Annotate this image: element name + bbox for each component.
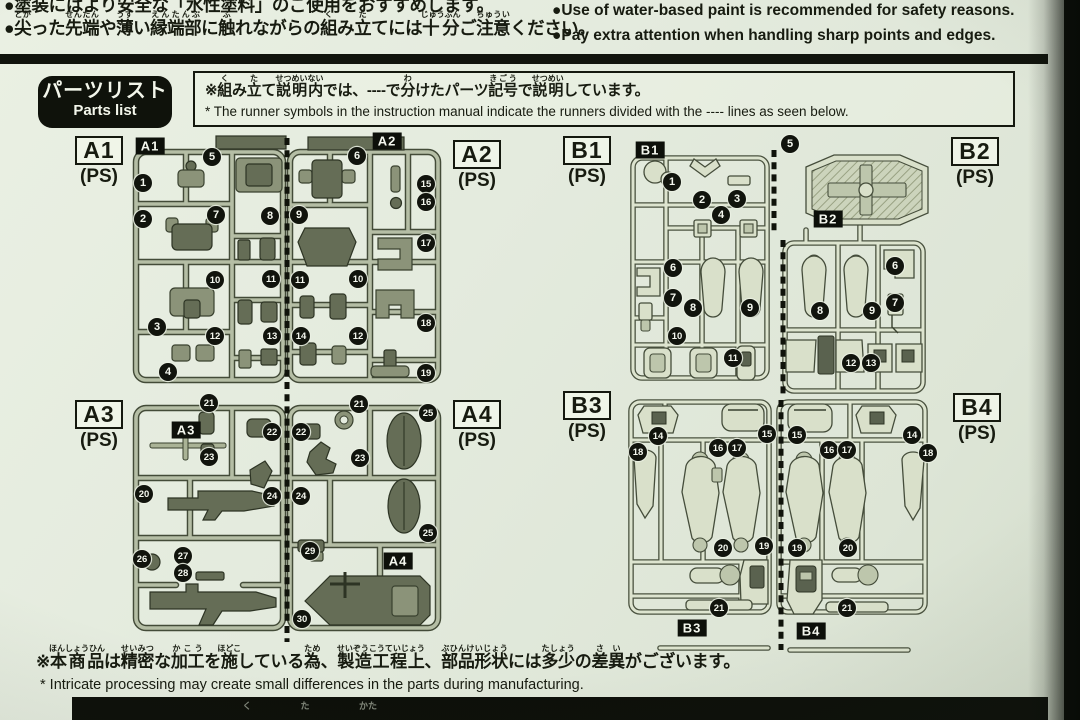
part-number-badge: 12 [206,327,224,345]
part-number-badge: 11 [291,271,309,289]
runner-tag-B2: B2 [814,211,843,228]
part-number-badge: 7 [664,289,682,307]
manual-page: ●塗装にはより安全な「水性塗料」のご使用をおすすめします。 ●尖とがった先端せん… [0,0,1064,720]
part-number-badge: 20 [135,485,153,503]
part-number-badge: 3 [728,190,746,208]
part-number-badge: 20 [839,539,857,557]
runner-label-box: A3 [75,400,122,429]
runner-material: (PS) [446,170,508,192]
part-number-badge: 10 [349,270,367,288]
part-number-badge: 19 [755,537,773,555]
part-number-badge: 6 [664,259,682,277]
part-number-badge: 18 [417,314,435,332]
runner-label-box: A1 [75,136,122,165]
part-number-badge: 21 [350,395,368,413]
part-number-badge: 15 [417,175,435,193]
part-number-badge: 27 [174,547,192,565]
part-number-badge: 18 [629,443,647,461]
part-number-badge: 15 [788,426,806,444]
runner-label-B4: B4(PS) [946,393,1008,445]
runner-material: (PS) [556,166,618,188]
band-furigana: た [300,699,309,712]
part-number-badge: 11 [262,270,280,288]
part-number-badge: 1 [134,174,152,192]
runner-art-A2 [290,137,438,380]
runner-tag-B4: B4 [797,623,826,640]
part-number-badge: 2 [693,191,711,209]
runner-label-B2: B2(PS) [944,137,1006,189]
manual-photo: ●塗装にはより安全な「水性塗料」のご使用をおすすめします。 ●尖とがった先端せん… [0,0,1080,720]
part-number-badge: 11 [724,349,742,367]
part-number-badge: 20 [714,539,732,557]
bottom-note-en: * Intricate processing may create small … [40,677,584,693]
part-number-badge: 10 [668,327,686,345]
part-number-badge: 25 [419,404,437,422]
part-number-badge: 13 [263,327,281,345]
runner-material: (PS) [446,430,508,452]
part-number-badge: 12 [349,327,367,345]
runner-tag-B1: B1 [636,142,665,159]
part-number-badge: 25 [419,524,437,542]
part-number-badge: 30 [293,610,311,628]
runner-label-A4: A4(PS) [446,400,508,452]
bottom-note-jp: ※本商品ほんしょうひんは精密せいみつな加工かこうを施ほどこしている為ため、製造工… [36,644,740,675]
runner-tag-A4: A4 [384,553,413,570]
page-edge-shadow [1028,0,1080,720]
part-number-badge: 6 [348,147,366,165]
runner-material: (PS) [556,421,618,443]
runner-material: (PS) [68,166,130,188]
part-number-badge: 22 [263,423,281,441]
runner-label-box: B3 [563,391,610,420]
runner-tag-A3: A3 [172,422,201,439]
part-number-badge: 8 [811,302,829,320]
part-number-badge: 21 [838,599,856,617]
runner-tag-B3: B3 [678,620,707,637]
runner-material: (PS) [946,423,1008,445]
part-number-badge: 17 [417,234,435,252]
runner-label-A2: A2(PS) [446,140,508,192]
band-furigana: く [242,699,251,712]
runner-label-box: B1 [563,136,610,165]
part-number-badge: 17 [728,439,746,457]
runner-label-A3: A3(PS) [68,400,130,452]
part-number-badge: 24 [292,487,310,505]
runner-material: (PS) [944,167,1006,189]
part-number-badge: 5 [781,135,799,153]
runner-label-B1: B1(PS) [556,136,618,188]
part-number-badge: 16 [709,439,727,457]
part-number-badge: 9 [741,299,759,317]
part-number-badge: 1 [663,173,681,191]
runner-tag-A1: A1 [136,138,165,155]
part-number-badge: 16 [417,193,435,211]
part-number-badge: 3 [148,318,166,336]
part-number-badge: 23 [200,448,218,466]
part-number-badge: 14 [649,427,667,445]
runner-art-A4 [290,408,438,628]
part-number-badge: 13 [862,354,880,372]
next-section-band: くたかた [72,697,1048,720]
runner-label-box: A4 [453,400,500,429]
part-number-badge: 8 [684,299,702,317]
part-number-badge: 18 [919,444,937,462]
part-number-badge: 22 [292,423,310,441]
part-number-badge: 4 [159,363,177,381]
part-number-badge: 19 [417,364,435,382]
part-number-badge: 9 [863,302,881,320]
part-number-badge: 12 [842,354,860,372]
part-number-badge: 14 [292,327,310,345]
band-furigana: かた [359,699,377,712]
part-number-badge: 29 [301,542,319,560]
part-number-badge: 4 [712,206,730,224]
part-number-badge: 26 [133,550,151,568]
runner-label-B3: B3(PS) [556,391,618,443]
runner-label-box: B4 [953,393,1000,422]
part-number-badge: 2 [134,210,152,228]
part-number-badge: 6 [886,257,904,275]
part-number-badge: 7 [207,206,225,224]
runner-label-box: A2 [453,140,500,169]
runner-label-A1: A1(PS) [68,136,130,188]
part-number-badge: 23 [351,449,369,467]
part-number-badge: 21 [710,599,728,617]
part-number-badge: 14 [903,426,921,444]
part-number-badge: 9 [290,206,308,224]
part-number-badge: 16 [820,441,838,459]
runner-tag-A2: A2 [373,133,402,150]
part-number-badge: 10 [206,271,224,289]
part-number-badge: 28 [174,564,192,582]
runner-art-A3 [136,408,283,628]
runner-material: (PS) [68,430,130,452]
part-number-badge: 5 [203,148,221,166]
part-number-badge: 7 [886,294,904,312]
part-number-badge: 17 [838,441,856,459]
part-number-badge: 8 [261,207,279,225]
runner-label-box: B2 [951,137,998,166]
part-number-badge: 21 [200,394,218,412]
part-number-badge: 19 [788,539,806,557]
part-number-badge: 24 [263,487,281,505]
runner-sprue-art [0,0,1080,720]
part-number-badge: 15 [758,425,776,443]
